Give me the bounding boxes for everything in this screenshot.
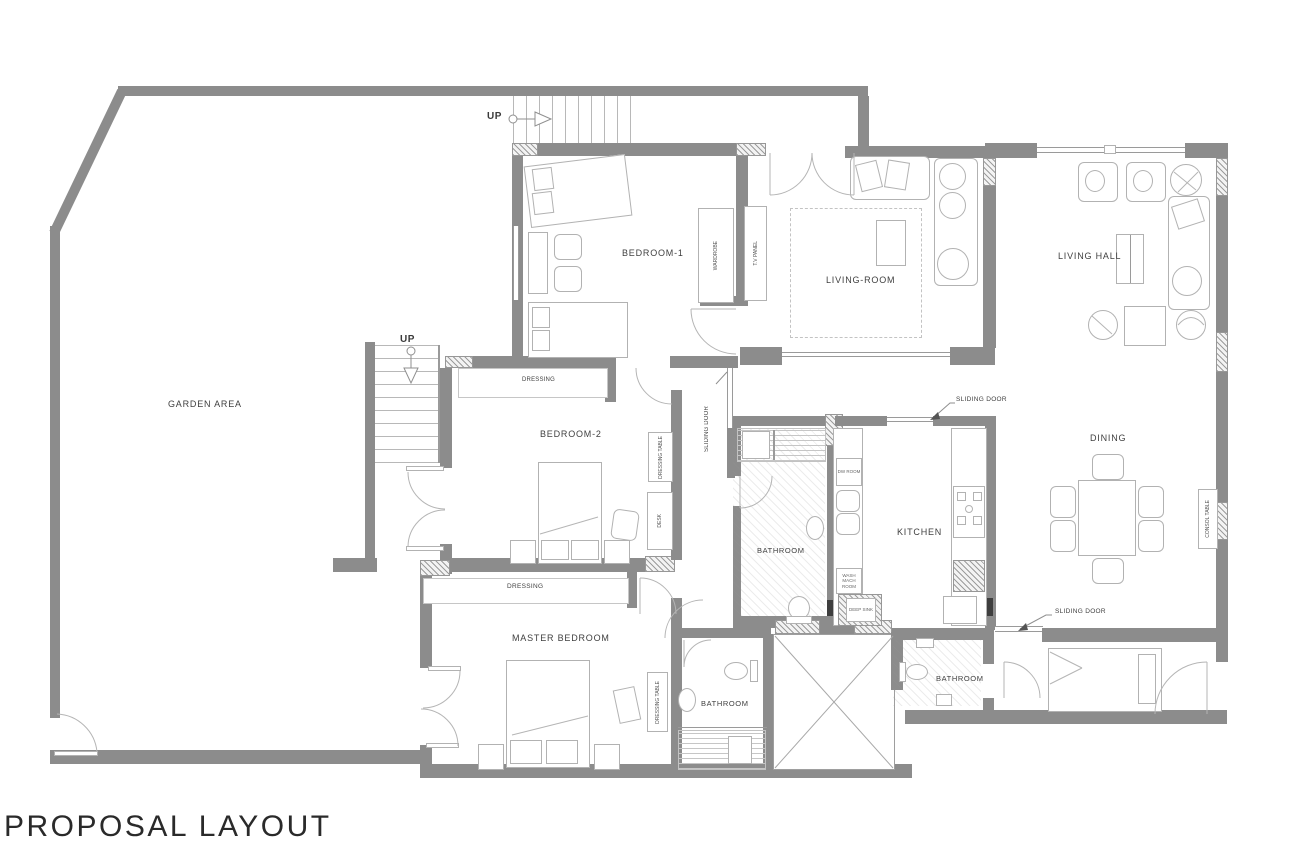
page-title: PROPOSAL LAYOUT [4, 810, 332, 844]
up-label-top-stair: UP [487, 111, 502, 122]
dressing-table-bedroom2-label: DRESSING TABLE [658, 436, 664, 479]
leader-lines [716, 372, 1052, 631]
door-arcs [57, 153, 1207, 752]
sliding-door-label-dining: SLIDING DOOR [1055, 608, 1106, 615]
consol-table-label: CONSOL TABLE [1205, 500, 1211, 538]
bathroom-small-label: BATHROOM [936, 674, 984, 683]
desk-label: DESK [657, 514, 663, 528]
living-hall-label: LIVING HALL [1058, 251, 1121, 261]
master-bedroom-label: MASTER BEDROOM [512, 633, 610, 643]
kitchen-label: KITCHEN [897, 527, 942, 537]
sliding-door-label-hall: SLIDING DOOR [704, 392, 710, 452]
wash-mach-room-box: WASH MACH ROOM [836, 568, 862, 594]
up-label-inner-stair: UP [400, 334, 415, 345]
bathroom-master-label: BATHROOM [701, 699, 749, 708]
wardrobe: WARDROBE [698, 208, 734, 303]
consol-table: CONSOL TABLE [1198, 489, 1218, 549]
wardrobe-label: WARDROBE [713, 241, 719, 270]
dw-room-box: DW ROOM [836, 458, 862, 486]
floor-plan: GARDEN AREA BEDROOM-1 LIVING-ROOM LIVING… [0, 0, 1300, 867]
deep-sink-label: DEEP SINK [849, 607, 873, 612]
dining-label: DINING [1090, 433, 1126, 443]
garden-area-label: GARDEN AREA [168, 399, 242, 409]
bedroom2-label: BEDROOM-2 [540, 429, 602, 439]
dressing-table-bedroom2: DRESSING TABLE [648, 432, 673, 482]
desk: DESK [647, 492, 673, 550]
deep-sink-box: DEEP SINK [846, 598, 876, 622]
tv-panel: T.V PANEL [744, 206, 767, 301]
boundary-chamfer-wall [54, 91, 122, 233]
shaft-x [775, 636, 893, 768]
bedroom1-label: BEDROOM-1 [622, 248, 684, 258]
tv-panel-label: T.V PANEL [753, 241, 759, 266]
bathroom-center-label: BATHROOM [757, 546, 805, 555]
sliding-door-label-kitchen: SLIDING DOOR [956, 396, 1007, 403]
stair-direction-arrows [404, 112, 551, 383]
dressing-table-master-label: DRESSING TABLE [655, 681, 661, 724]
living-room-label: LIVING-ROOM [826, 275, 895, 285]
dressing-label-master: DRESSING [507, 583, 543, 590]
dressing-label-bedroom2: DRESSING [522, 377, 555, 383]
dw-room-label: DW ROOM [838, 469, 861, 474]
dressing-table-master: DRESSING TABLE [647, 672, 668, 732]
wash-mach-room-label: WASH MACH ROOM [837, 573, 861, 589]
